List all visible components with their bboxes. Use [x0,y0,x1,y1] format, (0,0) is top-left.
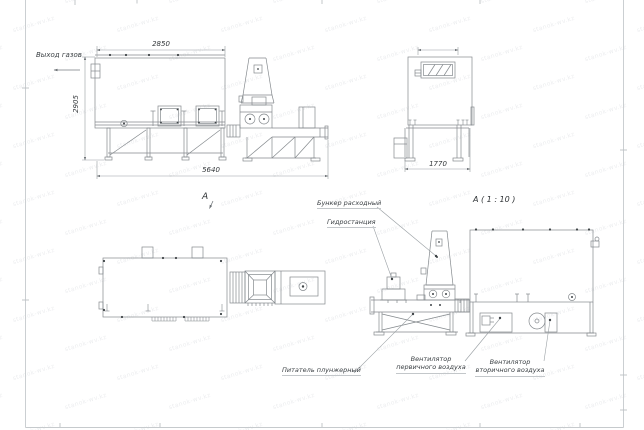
secondary-fan-callout: Вентилятор вторичного воздуха [475,359,545,377]
view-side-elevation [54,46,328,179]
plan-hydro-platform [275,271,325,304]
primary-fan-line2: первичного воздуха [396,364,466,372]
secondary-fan-line2: вторичного воздуха [475,367,545,375]
dim-end-width: 1770 [429,160,447,168]
bolt-dots [103,257,304,318]
furnace-detail-body [470,230,599,302]
hopper-tower-detail [421,231,455,300]
feeder-fan-box [240,105,272,128]
gas-outlet-label: Выход газов [36,51,82,59]
view-detail [354,207,599,373]
leader-lines [354,207,550,373]
end-support-frame [405,125,469,161]
feed-hopper-callout: Бункер расходный [317,199,381,209]
secondary-air-fan [529,313,557,332]
view-end-elevation [394,47,474,172]
bolt-dots [109,54,265,125]
hopper-tower [239,58,274,105]
anchor-symbols [105,304,225,311]
trestle-detail [374,312,458,335]
plan-bellows [230,272,245,303]
leader-dots [391,228,590,321]
furnace-plan-body [103,258,227,317]
anchor-bolts [409,120,469,125]
view-a-arrow [210,201,214,209]
dim-furnace-width: 2850 [152,40,170,48]
furnace-body [95,55,225,128]
bellows-connector [227,125,240,137]
side-bracket [471,107,474,125]
plan-view-label: А [202,192,208,202]
dim-total-length: 5640 [202,166,220,174]
drawing-sheet: stanok-wv.kzstanok-wv.kzstanok-wv.kzstan… [0,0,644,430]
hydrostation-callout: Гидростанция [327,218,376,228]
detail-view-label: А ( 1 : 10 ) [473,195,515,204]
view-plan [99,201,325,321]
feeder-conveyor [272,107,328,139]
gas-outlet-flange [91,64,100,78]
conveyor-trestle [243,137,320,161]
dimension-lines [405,47,470,172]
furnace-underframe [466,294,596,336]
primary-air-fan [480,313,512,332]
primary-fan-callout: Вентилятор первичного воздуха [396,356,466,374]
dim-furnace-height: 2905 [72,88,80,120]
top-hatch [415,62,455,78]
bottom-combs [152,317,209,321]
plan-feeder-hopper [245,271,275,306]
furnace-support-frame [105,128,226,160]
furnace-end-body [408,57,472,125]
plunger-feeder-callout: Питатель плунжерный [282,366,361,376]
hydrostation-unit [380,273,407,300]
dimension-lines [82,46,328,179]
